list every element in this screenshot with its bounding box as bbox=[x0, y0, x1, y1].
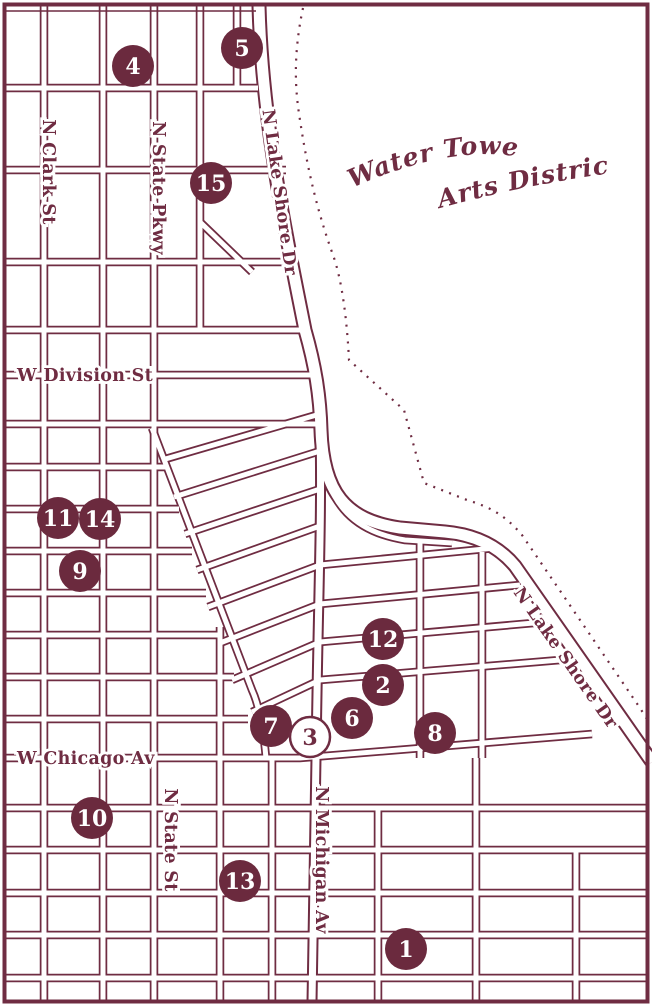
marker-number: 15 bbox=[196, 171, 227, 197]
street-label-n-lake-shore-dr-upper: N Lake Shore Dr bbox=[257, 108, 300, 277]
map-marker-15[interactable]: 15 bbox=[190, 162, 232, 204]
marker-number: 12 bbox=[368, 627, 399, 653]
map-marker-11[interactable]: 11 bbox=[37, 497, 79, 539]
water-tower-arts-district-map: Water Tower Arts District N Clark StN St… bbox=[0, 0, 652, 1006]
street-label-n-clark-st: N Clark St bbox=[38, 119, 58, 224]
marker-number: 14 bbox=[85, 507, 116, 533]
marker-number: 13 bbox=[225, 869, 256, 895]
marker-number: 5 bbox=[234, 36, 249, 62]
marker-number: 2 bbox=[375, 673, 390, 699]
map-marker-14[interactable]: 14 bbox=[79, 498, 121, 540]
map-marker-12[interactable]: 12 bbox=[362, 618, 404, 660]
map-marker-1[interactable]: 1 bbox=[385, 928, 427, 970]
marker-number: 11 bbox=[43, 506, 74, 532]
map-marker-5[interactable]: 5 bbox=[221, 27, 263, 69]
map-marker-7[interactable]: 7 bbox=[250, 705, 292, 747]
map-marker-6[interactable]: 6 bbox=[331, 697, 373, 739]
map-marker-9[interactable]: 9 bbox=[59, 550, 101, 592]
marker-number: 3 bbox=[302, 725, 317, 751]
marker-number: 9 bbox=[72, 559, 87, 585]
marker-number: 1 bbox=[398, 937, 413, 963]
street-label-n-lake-shore-dr-lower: N Lake Shore Dr bbox=[509, 584, 622, 733]
map-marker-10[interactable]: 10 bbox=[71, 797, 113, 839]
street-label-w-chicago-av: W Chicago Av bbox=[16, 749, 155, 769]
map-marker-4[interactable]: 4 bbox=[112, 45, 154, 87]
marker-number: 6 bbox=[344, 706, 359, 732]
marker-number: 10 bbox=[77, 806, 108, 832]
map-marker-8[interactable]: 8 bbox=[414, 712, 456, 754]
marker-number: 7 bbox=[263, 714, 278, 740]
marker-number: 4 bbox=[125, 54, 140, 80]
street-label-n-state-st: N State St bbox=[160, 788, 180, 891]
shoreline-dotted-line bbox=[296, 8, 650, 724]
district-title: Water Tower Arts District bbox=[0, 0, 611, 214]
map-marker-2[interactable]: 2 bbox=[362, 664, 404, 706]
map-marker-13[interactable]: 13 bbox=[219, 860, 261, 902]
map-canvas: Water Tower Arts District N Clark StN St… bbox=[0, 0, 652, 1006]
street-label-w-division-st: W Division St bbox=[16, 366, 153, 386]
district-title-line2: Arts District bbox=[0, 0, 611, 214]
marker-number: 8 bbox=[427, 721, 442, 747]
street-label-n-michigan-av: N Michigan Av bbox=[311, 786, 331, 934]
map-marker-3[interactable]: 3 bbox=[290, 717, 330, 757]
street-label-n-state-pkwy: N State Pkwy bbox=[148, 121, 168, 255]
